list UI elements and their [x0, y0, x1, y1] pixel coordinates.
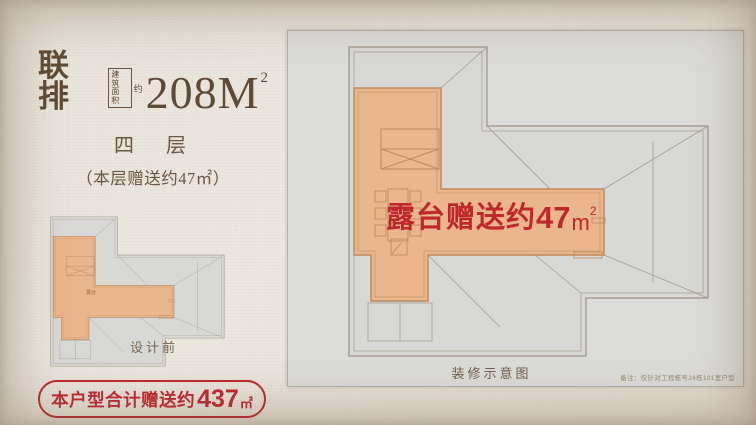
terrace-bonus-value: 47	[536, 202, 570, 235]
total-bonus-badge: 本户型合计赠送约 437 ㎡	[38, 380, 266, 418]
unit-title: 联排 建筑 面积 约 208M 2	[38, 50, 268, 112]
area-superscript: 2	[261, 71, 269, 86]
small-plan-terrace-tag: 露台	[86, 289, 96, 296]
disclaimer-note: 备注：仅针对工程栋号24栋101室户型	[620, 372, 735, 382]
badge-unit: ㎡	[240, 393, 253, 412]
area-value: 208M	[146, 74, 260, 112]
built-area-note: 建筑 面积 约	[108, 68, 142, 108]
poster-background: 联排 建筑 面积 约 208M 2 四 层 （本层赠送约47㎡） 露台 设计前 …	[0, 0, 756, 425]
small-plan-caption: 设计前	[130, 337, 178, 356]
floor-plan-panel: 露台赠送约 47 m 2 装修示意图 备注：仅针对工程栋号24栋101室户型	[287, 30, 744, 387]
built-area-box-line2: 面积	[111, 88, 128, 105]
unit-type-label: 联排	[38, 50, 102, 112]
terrace-bonus-text: 露台赠送约 47 m 2	[386, 202, 597, 236]
built-area-box: 建筑 面积	[108, 68, 131, 108]
left-info-column: 联排 建筑 面积 约 208M 2 四 层 （本层赠送约47㎡） 露台 设计前 …	[38, 0, 268, 418]
floor-label: 四 层	[38, 129, 268, 158]
terrace-bonus-unit: m	[572, 210, 590, 236]
floor-bonus-note: （本层赠送约47㎡）	[38, 165, 268, 189]
small-floor-plan: 露台 设计前	[38, 213, 268, 371]
terrace-bonus-superscript: 2	[590, 204, 597, 218]
badge-value: 437	[197, 385, 239, 414]
approx-character: 约	[134, 82, 143, 95]
terrace-bonus-label: 露台赠送约	[386, 202, 536, 235]
badge-prefix: 本户型合计赠送约	[51, 387, 195, 412]
built-area-box-line1: 建筑	[111, 71, 128, 88]
